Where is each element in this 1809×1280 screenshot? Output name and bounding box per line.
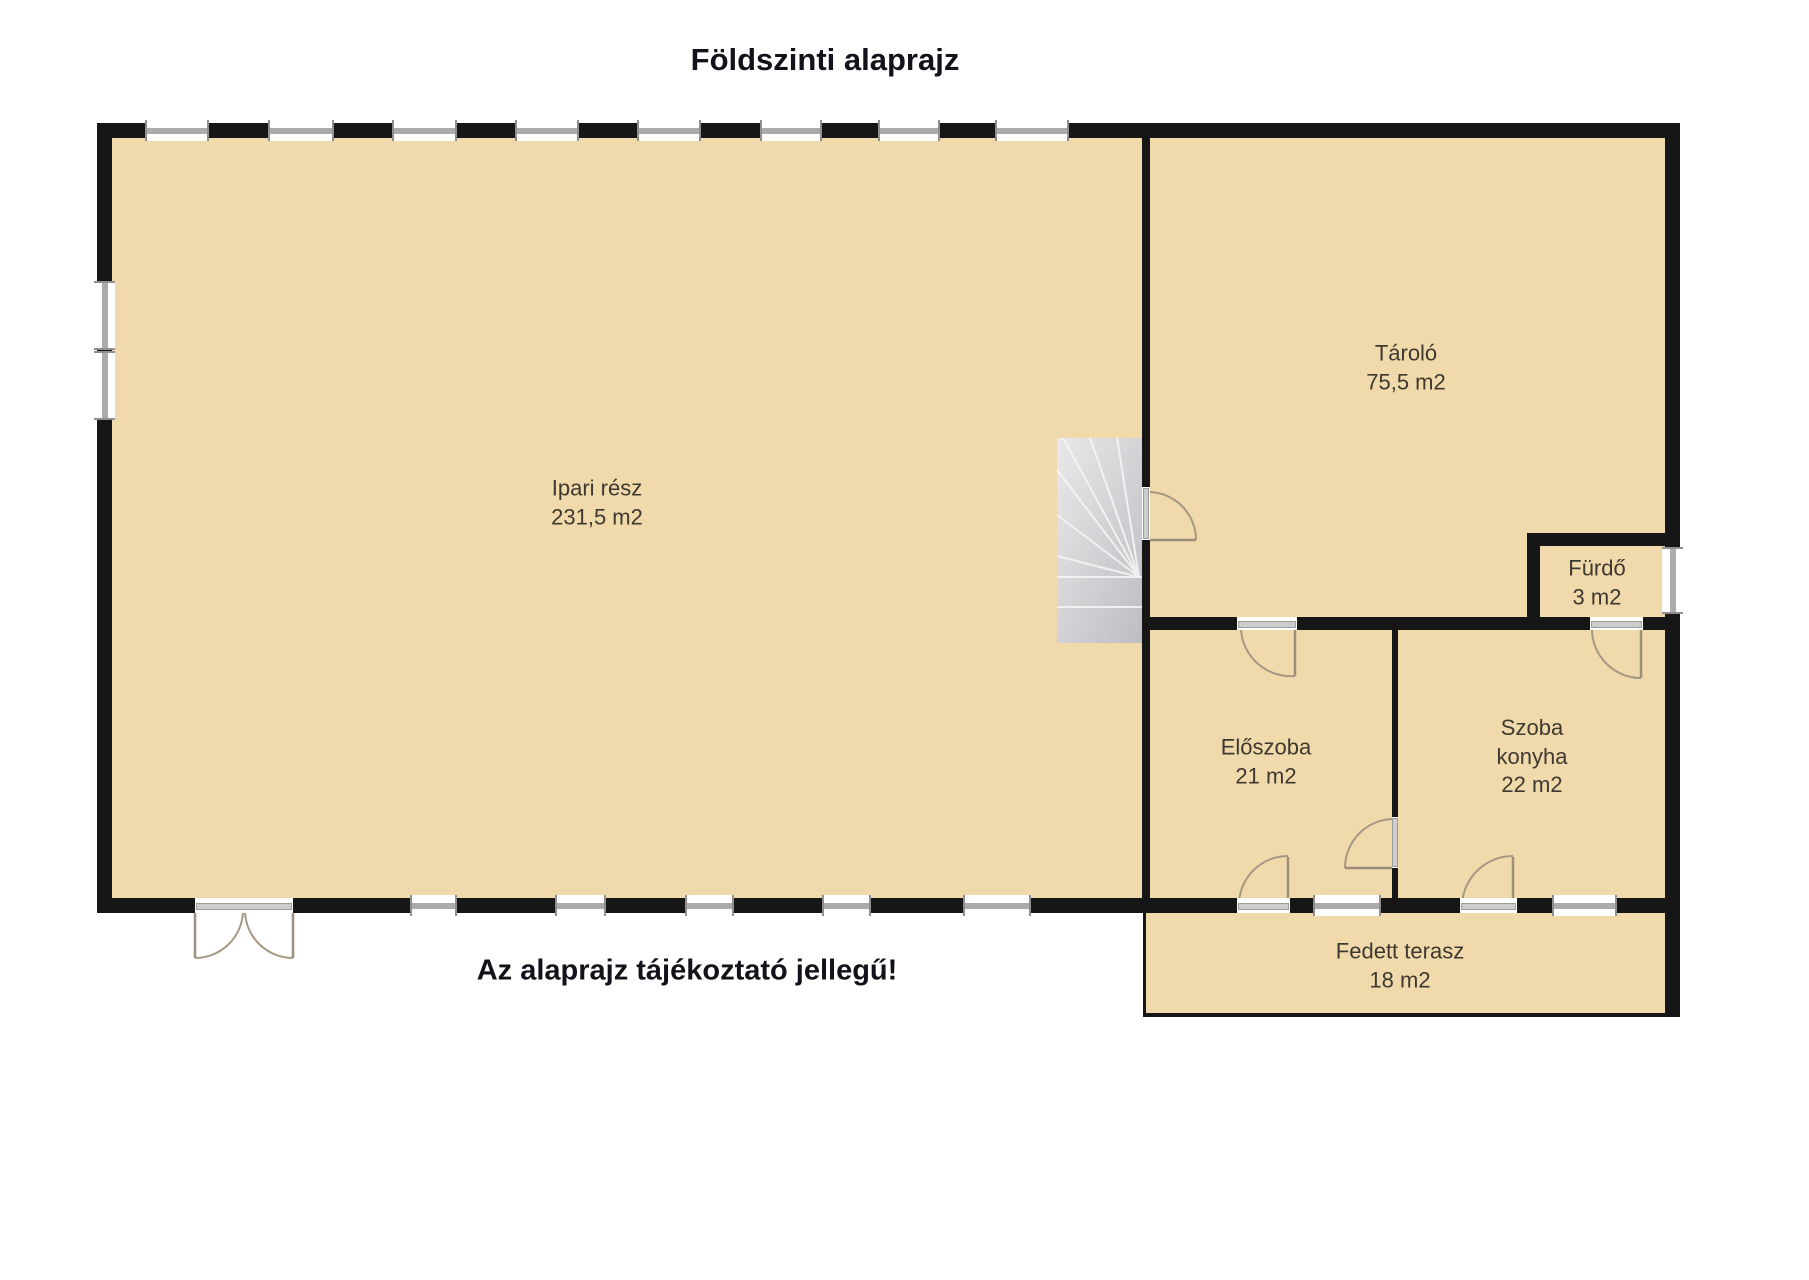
room-area: 18 m2 bbox=[1336, 966, 1464, 995]
window bbox=[392, 120, 457, 141]
room-name: Ipari rész bbox=[551, 474, 643, 503]
window bbox=[822, 895, 871, 916]
window bbox=[268, 120, 334, 141]
room-area: 231,5 m2 bbox=[551, 503, 643, 532]
tarolo-door-arc bbox=[1241, 630, 1295, 676]
window bbox=[145, 120, 209, 141]
window bbox=[94, 351, 115, 420]
window bbox=[1662, 547, 1683, 614]
window bbox=[878, 120, 940, 141]
room-label-furdo: Fürdő 3 m2 bbox=[1568, 554, 1625, 611]
disclaimer-text: Az alaprajz tájékoztató jellegű! bbox=[477, 955, 898, 988]
window bbox=[760, 120, 822, 141]
window bbox=[555, 895, 606, 916]
wall-furdo-west bbox=[1527, 533, 1540, 623]
room-label-eloszoba: Előszoba 21 m2 bbox=[1221, 733, 1312, 790]
wall-south bbox=[97, 898, 1680, 913]
wall-west bbox=[97, 123, 112, 913]
terrace-border-south bbox=[1143, 1013, 1680, 1017]
staircase bbox=[1057, 438, 1143, 643]
window bbox=[515, 120, 579, 141]
window bbox=[1552, 895, 1617, 916]
room-name: Tároló bbox=[1366, 339, 1446, 368]
wall-tarolo-south bbox=[1150, 617, 1665, 630]
room-name: Fürdő bbox=[1568, 554, 1625, 583]
room-area: 75,5 m2 bbox=[1366, 368, 1446, 397]
wall-furdo-north bbox=[1527, 533, 1665, 546]
terrace-door-1-opening bbox=[1237, 898, 1290, 913]
room-name: Fedett terasz bbox=[1336, 937, 1464, 966]
stairs-door-arc bbox=[1150, 492, 1196, 540]
entry-door-left-arc bbox=[195, 912, 243, 958]
room-name: Szoba konyha bbox=[1497, 714, 1568, 771]
tarolo-door-opening bbox=[1237, 617, 1297, 630]
partition-door-arc bbox=[1345, 819, 1392, 868]
furdo-door-opening bbox=[1590, 617, 1643, 630]
room-area: 21 m2 bbox=[1221, 762, 1312, 791]
room-area: 22 m2 bbox=[1497, 771, 1568, 800]
window bbox=[995, 120, 1069, 141]
page-title: Földszinti alaprajz bbox=[691, 42, 960, 78]
entry-door-right-arc bbox=[245, 912, 293, 958]
terrace-door-2-opening bbox=[1460, 898, 1517, 913]
entry-double-door-opening bbox=[195, 898, 293, 913]
room-label-tarolo: Tároló 75,5 m2 bbox=[1366, 339, 1446, 396]
door-swing-arcs bbox=[195, 492, 1641, 958]
window bbox=[94, 281, 115, 350]
window bbox=[963, 895, 1031, 916]
partition-door-opening bbox=[1392, 817, 1398, 868]
window bbox=[685, 895, 734, 916]
room-label-fedett-terasz: Fedett terasz 18 m2 bbox=[1336, 937, 1464, 994]
terrace-border-west bbox=[1143, 913, 1146, 1017]
room-label-ipari-resz: Ipari rész 231,5 m2 bbox=[551, 474, 643, 531]
plan-overlay bbox=[0, 0, 1809, 1280]
floor-plan: Földszinti alaprajz Az alaprajz tájékozt… bbox=[0, 0, 1809, 1280]
room-name: Előszoba bbox=[1221, 733, 1312, 762]
window bbox=[1313, 895, 1381, 916]
room-label-szoba-konyha: Szoba konyha 22 m2 bbox=[1497, 714, 1568, 800]
stairs-door-opening bbox=[1142, 487, 1150, 540]
room-area: 3 m2 bbox=[1568, 583, 1625, 612]
window bbox=[637, 120, 701, 141]
window bbox=[410, 895, 457, 916]
furdo-door-arc bbox=[1592, 630, 1641, 678]
